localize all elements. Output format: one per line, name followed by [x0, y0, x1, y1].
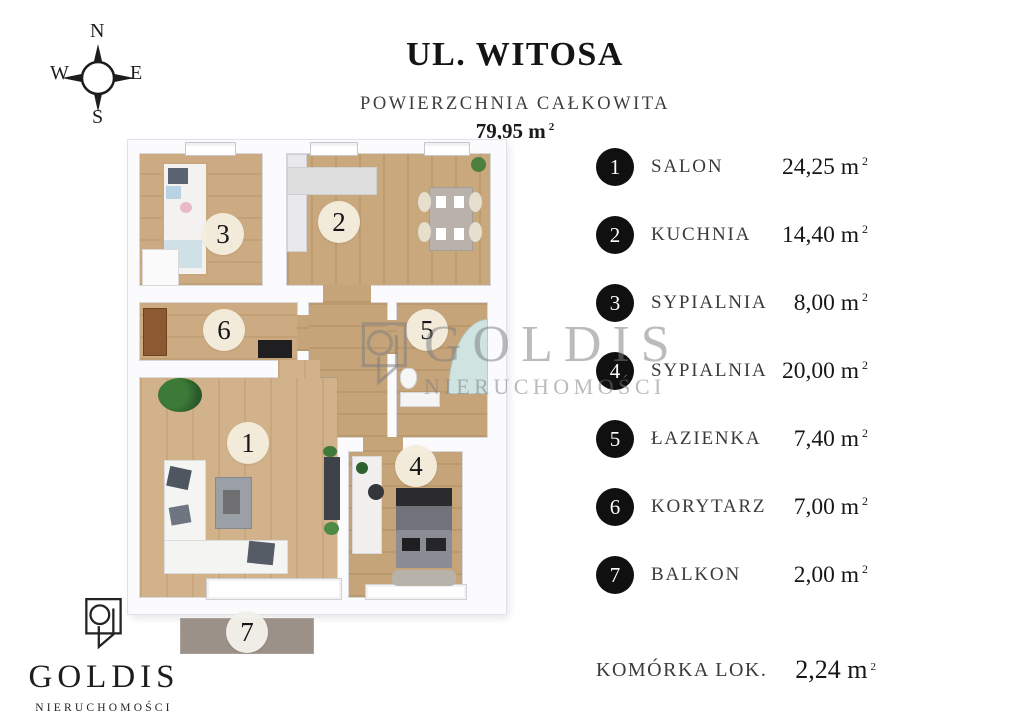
storage-room-label: KOMÓRKA LOK.: [596, 659, 767, 682]
legend-number-badge: 3: [596, 284, 634, 322]
balcony-door-salon: [206, 578, 342, 600]
window-bedroom-3: [185, 142, 236, 156]
room-number-bathroom: 5: [406, 309, 448, 351]
room-number-balcony: 7: [226, 611, 268, 653]
legend-number-badge: 7: [596, 556, 634, 594]
legend-room-area: 8,00 m2: [794, 290, 868, 317]
wardrobe: [142, 249, 179, 286]
legend-number-badge: 4: [596, 352, 634, 390]
pillow-sofa: [166, 466, 192, 490]
legend-number-badge: 5: [596, 420, 634, 458]
floor-plan: 1 2 3 4 5 6: [128, 140, 506, 614]
compass-west-label: W: [50, 62, 69, 85]
compass-south-label: S: [92, 106, 103, 129]
pillow-sofa: [169, 504, 192, 525]
plant-kitchen: [471, 157, 486, 172]
compass-east-label: E: [130, 62, 142, 85]
agency-logo: GOLDIS NIERUCHOMOŚCI: [18, 596, 190, 714]
room-number-bedroom-4: 4: [395, 445, 437, 487]
bed-blanket: [396, 506, 452, 530]
window-bedroom-4: [365, 584, 467, 600]
room-number-kitchen: 2: [318, 201, 360, 243]
plate: [454, 228, 464, 240]
agency-name: GOLDIS: [18, 659, 190, 696]
legend-room-label: BALKON: [651, 564, 741, 586]
goldis-monogram-icon: [83, 596, 125, 650]
door-opening-corridor-hall: [297, 315, 309, 351]
floor-plan-page: N S W E UL. WITOSA POWIERZCHNIA CAŁKOWIT…: [0, 0, 1021, 722]
chair: [418, 192, 431, 212]
plant-shelf-top: [323, 446, 337, 457]
door-opening-kitchen-hall: [323, 285, 371, 303]
storage-room-row: KOMÓRKA LOK. 2,24 m2: [596, 655, 876, 685]
kitchen-counter-top: [287, 167, 377, 195]
agency-tagline: NIERUCHOMOŚCI: [18, 702, 190, 714]
legend-room-label: SALON: [651, 156, 723, 178]
legend-room-area: 2,00 m2: [794, 562, 868, 589]
bed-headboard: [396, 488, 452, 506]
throw-blanket: [247, 541, 275, 566]
door-opening-corridor-salon: [278, 360, 320, 378]
header: UL. WITOSA POWIERZCHNIA CAŁKOWITA 79,95 …: [315, 36, 715, 144]
pillow-blue: [166, 186, 181, 199]
plate: [436, 196, 446, 208]
legend-room-area: 14,40 m2: [782, 222, 868, 249]
desk-chair: [368, 484, 384, 500]
plate: [436, 228, 446, 240]
door-opening-bathroom: [387, 320, 397, 354]
legend-row: 4 SYPIALNIA 20,00 m2: [596, 337, 868, 405]
window-kitchen-2: [424, 142, 470, 156]
legend-room-label: KORYTARZ: [651, 496, 766, 518]
legend-room-label: ŁAZIENKA: [651, 428, 761, 450]
plant-shelf-bottom: [324, 522, 339, 535]
room-legend: 1 SALON 24,25 m2 2 KUCHNIA 14,40 m2 3 SY…: [596, 133, 868, 609]
pillow-bed: [426, 538, 446, 551]
legend-room-area: 7,00 m2: [794, 494, 868, 521]
tv-unit: [324, 457, 340, 520]
room-number-corridor: 6: [203, 309, 245, 351]
legend-room-area: 24,25 m2: [782, 154, 868, 181]
cushion-pink: [180, 202, 192, 213]
pillow-bed: [402, 538, 420, 551]
room-number-bedroom-3: 3: [202, 213, 244, 255]
plate: [454, 196, 464, 208]
legend-row: 6 KORYTARZ 7,00 m2: [596, 473, 868, 541]
legend-row: 1 SALON 24,25 m2: [596, 133, 868, 201]
legend-room-label: KUCHNIA: [651, 224, 751, 246]
console-dark: [258, 340, 292, 358]
legend-room-label: SYPIALNIA: [651, 292, 767, 314]
legend-room-area: 20,00 m2: [782, 358, 868, 385]
rug-bedroom: [392, 570, 456, 586]
legend-number-badge: 1: [596, 148, 634, 186]
chair: [469, 192, 482, 212]
coffee-table: [223, 490, 240, 514]
compass-north-label: N: [90, 20, 104, 43]
pillow-dark: [168, 168, 188, 184]
plant-large: [158, 378, 202, 412]
total-area-label: POWIERZCHNIA CAŁKOWITA: [315, 94, 715, 115]
compass-rose: N S W E: [48, 20, 148, 128]
toilet: [400, 368, 417, 389]
door-opening-hall-bedroom-4: [363, 437, 403, 452]
legend-row: 3 SYPIALNIA 8,00 m2: [596, 269, 868, 337]
window-kitchen-1: [310, 142, 358, 156]
bathroom-sink: [400, 392, 440, 407]
plant-desk: [356, 462, 368, 474]
chair: [469, 222, 482, 242]
storage-room-area: 2,24 m2: [795, 655, 876, 685]
legend-number-badge: 2: [596, 216, 634, 254]
legend-row: 7 BALKON 2,00 m2: [596, 541, 868, 609]
legend-row: 2 KUCHNIA 14,40 m2: [596, 201, 868, 269]
legend-room-label: SYPIALNIA: [651, 360, 767, 382]
room-number-salon: 1: [227, 422, 269, 464]
legend-number-badge: 6: [596, 488, 634, 526]
legend-room-area: 7,40 m2: [794, 426, 868, 453]
chair: [418, 222, 431, 242]
legend-row: 5 ŁAZIENKA 7,40 m2: [596, 405, 868, 473]
entrance-door: [143, 308, 167, 356]
page-title: UL. WITOSA: [315, 36, 715, 74]
